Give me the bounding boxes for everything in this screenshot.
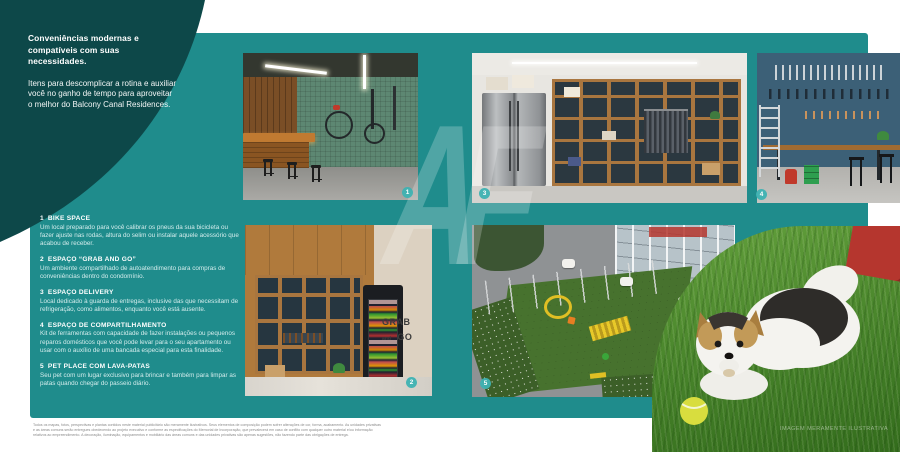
plant xyxy=(333,363,345,373)
item-description: Kit de ferramentas com capacidade de faz… xyxy=(40,330,242,355)
stool xyxy=(311,165,321,168)
stool xyxy=(849,157,864,160)
sign-text: GRAB xyxy=(382,317,424,327)
sign-text: and xyxy=(382,336,391,342)
list-item-compartilhamento: 4ESPAÇO DE COMPARTILHAMENTO Kit de ferra… xyxy=(40,322,242,355)
item-title: ESPAÇO “GRAB AND GO” xyxy=(48,256,136,263)
item-description: Um ambiente compartilhado de autoatendim… xyxy=(40,265,242,281)
item-number: 2 xyxy=(40,256,44,263)
wood-shelving xyxy=(255,275,363,374)
item-title: ESPAÇO DELIVERY xyxy=(48,289,114,296)
dog-illustration xyxy=(652,226,900,452)
green-cart xyxy=(804,165,819,184)
pegboard-tools xyxy=(769,89,889,99)
photo-badge-3: 3 xyxy=(479,188,490,199)
bike-frame xyxy=(371,89,374,129)
item-number: 1 xyxy=(40,215,44,222)
led-light xyxy=(512,62,697,64)
hanging-clothes xyxy=(644,109,688,153)
white-chair xyxy=(620,277,633,286)
green-ball xyxy=(602,353,609,360)
storage-boxes xyxy=(486,77,508,90)
parcel-box xyxy=(602,131,616,140)
workbench xyxy=(763,145,900,150)
plant xyxy=(877,131,889,140)
wood-wall xyxy=(243,77,297,135)
photo-badge-5: 5 xyxy=(480,378,491,389)
led-light xyxy=(363,55,366,89)
yellow-hoop xyxy=(544,295,572,319)
item-title: ESPAÇO DE COMPARTILHAMENTO xyxy=(48,322,167,329)
item-number: 3 xyxy=(40,289,44,296)
photo-badge-1: 1 xyxy=(402,187,413,198)
tool-workshop-photo xyxy=(757,53,900,203)
legal-disclaimer: Todos os mapas, fotos, perspectivas e pl… xyxy=(33,423,381,437)
parcel-box xyxy=(564,87,580,97)
photo-badge-2: 2 xyxy=(406,377,417,388)
page-title: Conveniências modernas e compatíveis com… xyxy=(28,33,178,68)
bike-wheel xyxy=(325,111,353,139)
hanging-bike xyxy=(393,86,396,130)
item-description: Um local preparado para você calibrar os… xyxy=(40,224,242,249)
list-item-grab-and-go: 2ESPAÇO “GRAB AND GO” Um ambiente compar… xyxy=(40,256,242,281)
brochure-page: Conveniências modernas e compatíveis com… xyxy=(0,0,900,452)
floor xyxy=(472,186,747,203)
bottles xyxy=(283,333,323,343)
bike-wheel xyxy=(364,123,385,144)
item-number: 5 xyxy=(40,363,44,370)
wood-counter xyxy=(243,133,315,142)
marble-floor xyxy=(245,377,432,396)
parcel-box xyxy=(568,157,581,166)
amenity-list: 1BIKE SPACE Um local preparado para você… xyxy=(40,215,242,396)
tree-canopy xyxy=(474,225,544,271)
item-description: Seu pet com um lugar exclusivo para brin… xyxy=(40,372,242,388)
grab-and-go-photo: GRAB and GO xyxy=(245,225,432,396)
grab-and-go-wall-sign: GRAB and GO xyxy=(382,317,424,345)
stool xyxy=(263,159,273,162)
red-vacuum xyxy=(785,169,797,184)
pegboard-tools xyxy=(775,65,887,80)
stool xyxy=(287,162,297,165)
delivery-space-photo xyxy=(472,53,747,203)
green-pegboard-wall xyxy=(295,77,418,167)
ceiling xyxy=(472,53,747,75)
sign-text: GO xyxy=(397,332,412,342)
item-title: PET PLACE COM LAVA-PATAS xyxy=(48,363,150,370)
item-number: 4 xyxy=(40,322,44,329)
orange-toy xyxy=(567,316,575,324)
ladder xyxy=(759,105,780,177)
parcel-box xyxy=(702,163,720,175)
intro-paragraph: Itens para descomplicar a rotina e auxil… xyxy=(28,79,178,111)
pegboard-tools xyxy=(805,111,885,119)
intro-block: Conveniências modernas e compatíveis com… xyxy=(28,33,178,111)
list-item-pet-place: 5PET PLACE COM LAVA-PATAS Seu pet com um… xyxy=(40,363,242,388)
item-title: BIKE SPACE xyxy=(48,215,90,222)
refrigerators xyxy=(482,93,546,186)
list-item-delivery: 3ESPAÇO DELIVERY Local dedicado à guarda… xyxy=(40,289,242,314)
photo-badge-4: 4 xyxy=(756,189,767,200)
red-helmet xyxy=(333,105,340,110)
counter-front xyxy=(243,142,309,168)
photo-credit: IMAGEM MERAMENTE ILUSTRATIVA xyxy=(780,426,888,432)
bike-space-photo xyxy=(243,53,418,200)
list-item-bike-space: 1BIKE SPACE Um local preparado para você… xyxy=(40,215,242,248)
item-description: Local dedicado à guarda de entregas, inc… xyxy=(40,298,242,314)
concrete-floor xyxy=(243,167,418,200)
stool xyxy=(879,154,894,157)
plant xyxy=(710,111,720,119)
dog-photo: IMAGEM MERAMENTE ILUSTRATIVA xyxy=(652,226,900,452)
white-chair xyxy=(562,259,575,268)
